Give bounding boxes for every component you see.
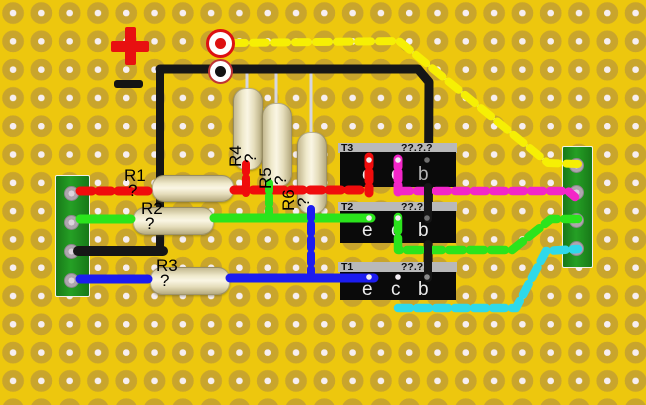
t1-pin-e-dot[interactable] [366, 274, 372, 280]
perfboard: T3 ??.?.? e c b T2 ??.?.? e c b T1 ??.?.… [0, 0, 646, 405]
t2-pin-b-dot[interactable] [424, 215, 430, 221]
t3-pin-e-dot[interactable] [366, 157, 372, 163]
resistor-r3-label: R3? [156, 258, 178, 288]
resistor-r6-label: R6? [281, 175, 315, 211]
positive-terminal[interactable] [206, 29, 235, 58]
minus-symbol [114, 80, 143, 88]
wire-layer-over [0, 0, 646, 405]
t2-pin-c-dot[interactable] [395, 215, 401, 221]
plus-symbol [111, 27, 149, 65]
resistor-r1-label: R1? [124, 168, 146, 198]
resistor-r4-label: R4? [228, 131, 262, 167]
t3-pin-b-dot[interactable] [424, 157, 430, 163]
t1-pin-c-dot[interactable] [395, 274, 401, 280]
positive-terminal-dot [215, 38, 226, 49]
negative-terminal[interactable] [208, 59, 233, 84]
t2-pin-e-dot[interactable] [366, 215, 372, 221]
t3-pin-c-dot[interactable] [395, 157, 401, 163]
plus-symbol-vbar [125, 27, 136, 65]
negative-terminal-dot [215, 66, 226, 77]
wire-yellow-positive[interactable] [232, 41, 578, 164]
resistor-r2-label: R2? [141, 201, 163, 231]
t1-pin-b-dot[interactable] [424, 274, 430, 280]
